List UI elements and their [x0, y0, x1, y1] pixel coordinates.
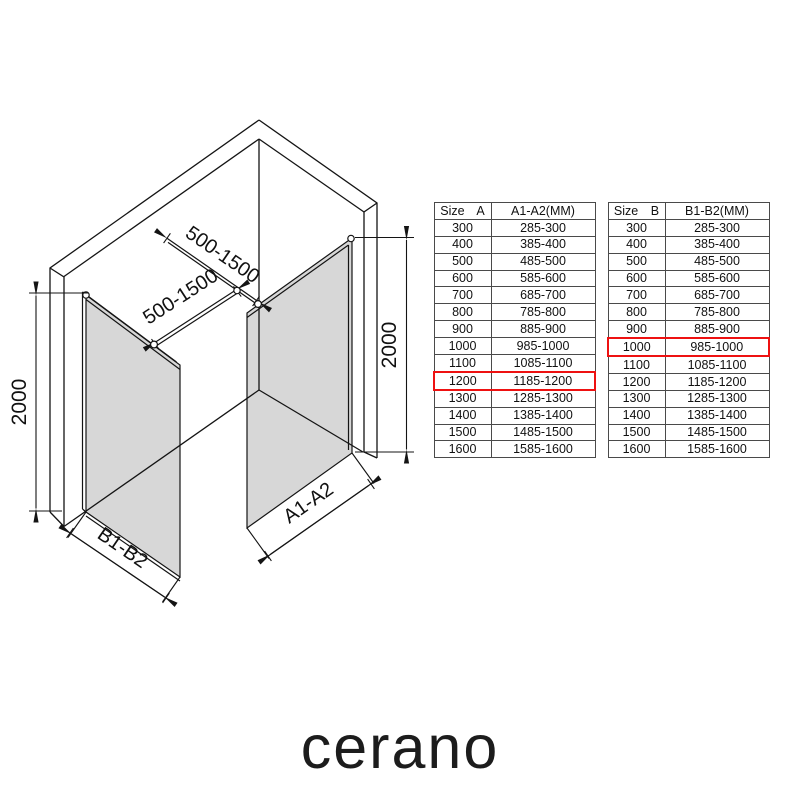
table-row: 300285-300 — [608, 219, 769, 236]
left-wall-inner-edge — [50, 268, 64, 527]
table-cell: 800 — [434, 304, 491, 321]
table-cell: 1185-1200 — [491, 372, 595, 390]
spec-sheet: 2000 2000 B1-B2 A1-A2 500-1500 500-1500 — [0, 0, 800, 800]
table-cell: 1085-1100 — [491, 355, 595, 372]
table-cell: 385-400 — [665, 236, 769, 253]
table-cell: 400 — [434, 236, 491, 253]
table-cell: 1300 — [608, 390, 665, 407]
table-cell: 600 — [608, 270, 665, 287]
table-row: 14001385-1400 — [608, 407, 769, 424]
table-row: 14001385-1400 — [434, 407, 595, 424]
table-cell: 1285-1300 — [665, 390, 769, 407]
table-cell: 1100 — [608, 356, 665, 373]
table-row: 400385-400 — [608, 236, 769, 253]
table-cell: 285-300 — [665, 219, 769, 236]
table-cell: 485-500 — [665, 253, 769, 270]
table-row: 900885-900 — [608, 321, 769, 338]
table-cell: 500 — [608, 253, 665, 270]
table-row: 800785-800 — [608, 304, 769, 321]
bar-clamp-right-panel — [255, 301, 262, 308]
glass-panel-right — [247, 238, 352, 528]
table-row: 300285-300 — [434, 219, 595, 236]
table-cell: 1400 — [434, 407, 491, 424]
table-cell: 300 — [608, 219, 665, 236]
table-cell: 300 — [434, 219, 491, 236]
table-row: 12001185-1200 — [608, 373, 769, 390]
wall-bracket-right — [348, 235, 354, 241]
table-cell: 600 — [434, 270, 491, 287]
table-cell: 1485-1500 — [665, 424, 769, 441]
table-cell: 985-1000 — [491, 338, 595, 355]
table-row: 400385-400 — [434, 236, 595, 253]
table-row: 13001285-1300 — [434, 390, 595, 407]
table-cell: 900 — [434, 321, 491, 338]
table-cell: 685-700 — [665, 287, 769, 304]
table-cell: 1185-1200 — [665, 373, 769, 390]
table-row: 1000985-1000 — [608, 338, 769, 356]
table-cell: 700 — [434, 287, 491, 304]
table-cell: 285-300 — [491, 219, 595, 236]
table-row: 700685-700 — [608, 287, 769, 304]
dim-height-right-label: 2000 — [378, 322, 401, 369]
table-cell: 1600 — [434, 441, 491, 458]
right-wall-inner-edge — [364, 203, 377, 452]
table-row: 600585-600 — [608, 270, 769, 287]
dim-height-left-label: 2000 — [8, 379, 31, 426]
table-row: 15001485-1500 — [434, 424, 595, 441]
table-cell: 685-700 — [491, 287, 595, 304]
table-cell: 1100 — [434, 355, 491, 372]
table-cell: 1200 — [434, 372, 491, 390]
right-wall-foot — [364, 452, 377, 458]
table-cell: 500 — [434, 253, 491, 270]
table-row: 16001585-1600 — [608, 441, 769, 458]
table-cell: 785-800 — [491, 304, 595, 321]
table-cell: 1085-1100 — [665, 356, 769, 373]
table-cell: 700 — [608, 287, 665, 304]
table-row: 11001085-1100 — [608, 356, 769, 373]
table-cell: 800 — [608, 304, 665, 321]
table-row: 15001485-1500 — [608, 424, 769, 441]
table-b-header-row: Size B B1-B2(MM) — [608, 203, 769, 220]
table-cell: 900 — [608, 321, 665, 338]
table-row: 600585-600 — [434, 270, 595, 287]
table-row: 500485-500 — [608, 253, 769, 270]
table-cell: 1500 — [434, 424, 491, 441]
dim-height-left — [29, 293, 88, 511]
right-wall-top-inner — [259, 139, 364, 212]
table-cell: 1385-1400 — [665, 407, 769, 424]
table-cell: 1000 — [608, 338, 665, 356]
table-row: 16001585-1600 — [434, 441, 595, 458]
table-cell: 1500 — [608, 424, 665, 441]
table-cell: 785-800 — [665, 304, 769, 321]
table-row: 900885-900 — [434, 321, 595, 338]
table-row: 700685-700 — [434, 287, 595, 304]
table-cell: 385-400 — [491, 236, 595, 253]
table-cell: 1600 — [608, 441, 665, 458]
table-cell: 885-900 — [491, 321, 595, 338]
bar-clamp-left-panel — [151, 341, 158, 348]
table-cell: 1400 — [608, 407, 665, 424]
table-cell: 485-500 — [491, 253, 595, 270]
table-cell: 585-600 — [491, 270, 595, 287]
table-a-header-row: Size A A1-A2(MM) — [434, 203, 595, 220]
dim-bar-bottom-label: 500-1500 — [139, 265, 222, 329]
table-cell: 1300 — [434, 390, 491, 407]
table-cell: 1485-1500 — [491, 424, 595, 441]
table-row: 11001085-1100 — [434, 355, 595, 372]
table-cell: 985-1000 — [665, 338, 769, 356]
table-row: 800785-800 — [434, 304, 595, 321]
size-table-b: Size B B1-B2(MM) 300285-300400385-400500… — [607, 202, 770, 458]
table-row: 13001285-1300 — [608, 390, 769, 407]
brand-logo: cerano — [0, 712, 800, 782]
table-row: 12001185-1200 — [434, 372, 595, 390]
bar-junction-clamp — [234, 287, 240, 293]
table-cell: 1385-1400 — [491, 407, 595, 424]
size-table-a: Size A A1-A2(MM) 300285-300400385-400500… — [433, 202, 596, 458]
table-cell: 1285-1300 — [491, 390, 595, 407]
table-cell: 1585-1600 — [665, 441, 769, 458]
table-b-header-size: Size B — [608, 203, 665, 220]
table-row: 500485-500 — [434, 253, 595, 270]
table-cell: 400 — [608, 236, 665, 253]
table-cell: 585-600 — [665, 270, 769, 287]
table-row: 1000985-1000 — [434, 338, 595, 355]
left-wall-foot — [50, 512, 64, 527]
table-a-header-range: A1-A2(MM) — [491, 203, 595, 220]
table-a-header-size: Size A — [434, 203, 491, 220]
table-cell: 1200 — [608, 373, 665, 390]
table-cell: 1000 — [434, 338, 491, 355]
table-b-header-range: B1-B2(MM) — [665, 203, 769, 220]
table-cell: 1585-1600 — [491, 441, 595, 458]
table-cell: 885-900 — [665, 321, 769, 338]
